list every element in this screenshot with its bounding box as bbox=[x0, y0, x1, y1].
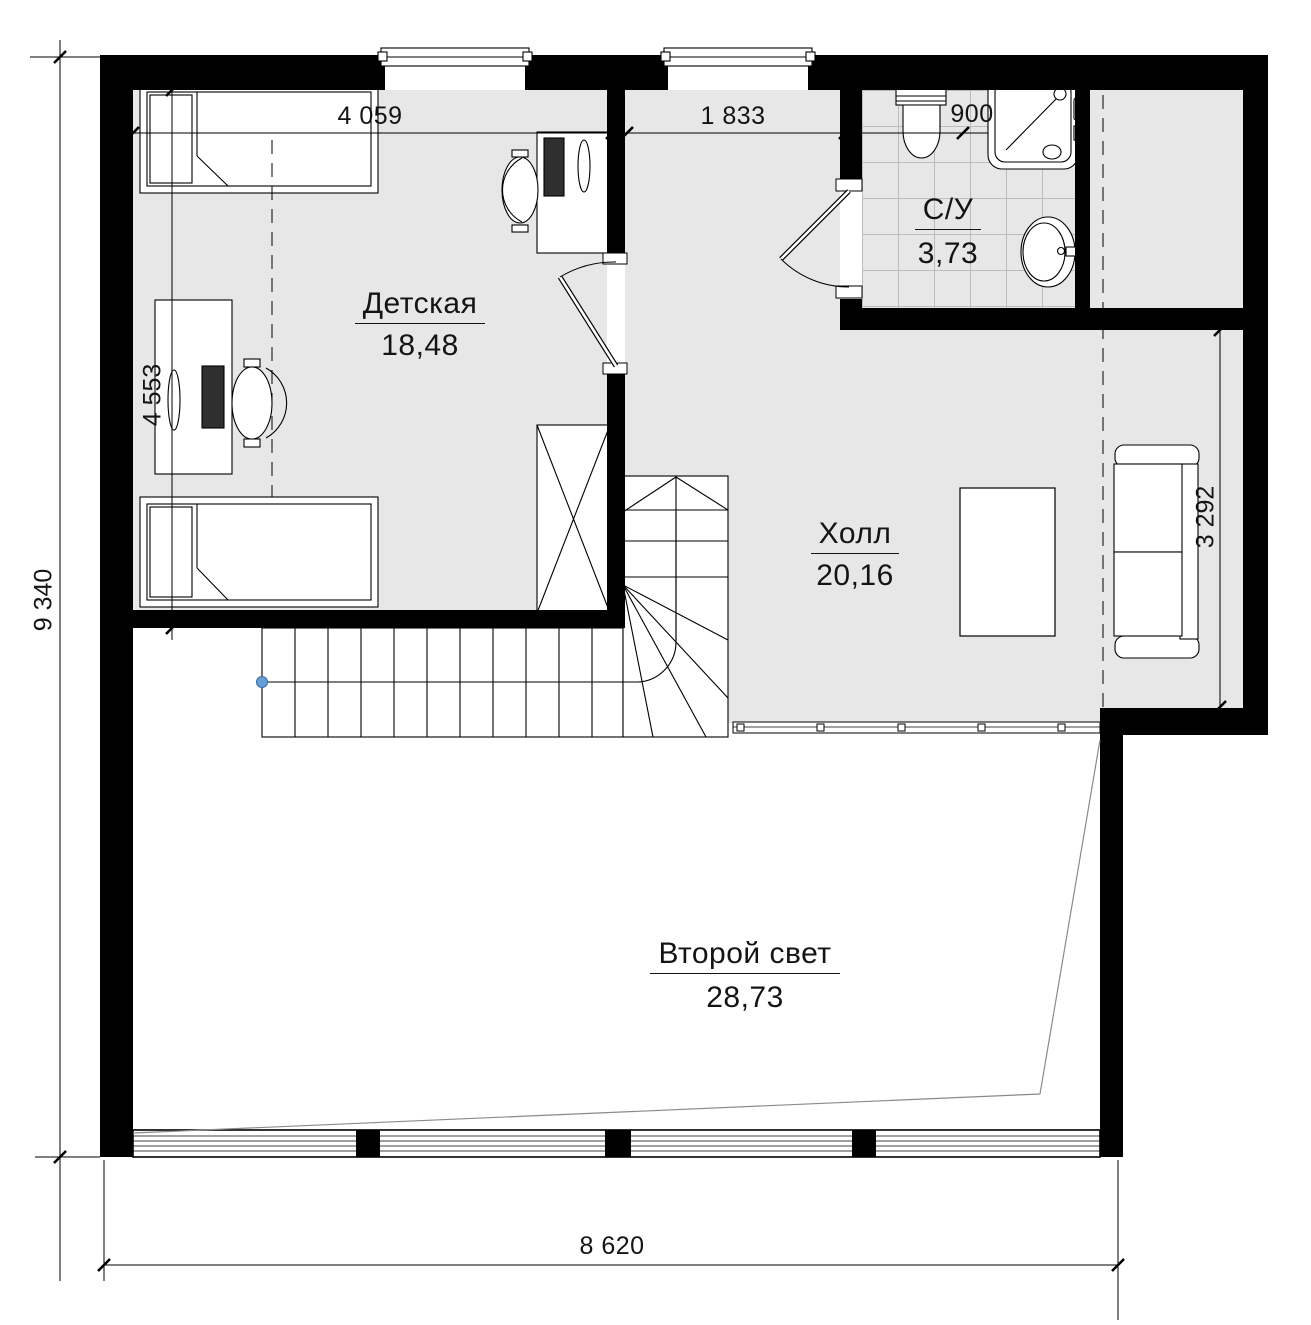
bed-icon bbox=[140, 85, 378, 193]
desk-icon bbox=[155, 300, 232, 474]
floor-plan: Детская 18,48 Холл 20,16 С/У 3,73 Второй… bbox=[0, 0, 1311, 1325]
window-icon bbox=[378, 48, 532, 90]
door-bathroom bbox=[781, 179, 862, 298]
void-outline bbox=[133, 740, 1100, 1133]
office-chair-icon bbox=[232, 359, 287, 447]
stair-start-marker bbox=[257, 677, 268, 688]
plan-linework bbox=[0, 0, 1311, 1325]
desk-icon bbox=[537, 132, 610, 253]
railing-icon bbox=[733, 722, 1100, 733]
bed-icon bbox=[140, 497, 378, 607]
wardrobe-icon bbox=[537, 425, 610, 613]
office-chair-icon bbox=[502, 150, 538, 232]
door-children-room bbox=[560, 253, 627, 374]
sofa-icon bbox=[1114, 445, 1199, 658]
window-icon bbox=[661, 48, 815, 90]
table-icon bbox=[960, 488, 1055, 636]
sink-icon bbox=[1021, 217, 1084, 287]
